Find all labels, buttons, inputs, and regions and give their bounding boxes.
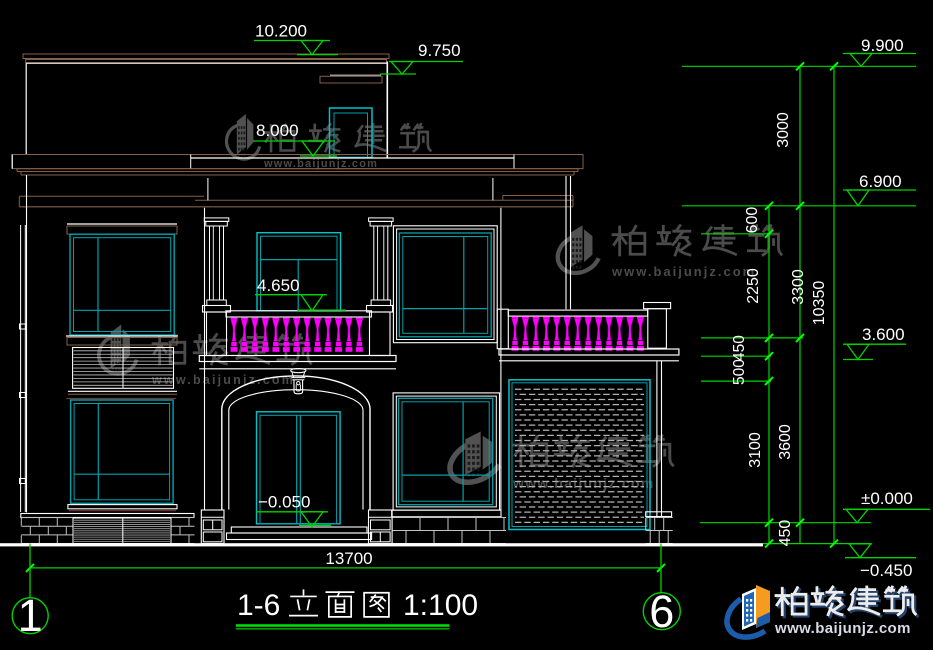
svg-text:2250: 2250: [745, 268, 762, 304]
svg-text:10.200: 10.200: [255, 22, 307, 41]
svg-text:9.900: 9.900: [861, 36, 904, 55]
svg-text:1-6: 1-6: [237, 589, 280, 622]
svg-text:3100: 3100: [747, 432, 764, 468]
svg-text:600: 600: [744, 207, 761, 234]
svg-text:3.600: 3.600: [862, 325, 905, 344]
svg-text:450: 450: [777, 520, 794, 547]
svg-text:9.750: 9.750: [418, 41, 461, 60]
svg-text:500: 500: [731, 359, 748, 385]
svg-text:−0.050: −0.050: [258, 493, 310, 512]
svg-text:3600: 3600: [777, 424, 794, 460]
svg-text:6: 6: [649, 586, 674, 637]
svg-text:10350: 10350: [811, 281, 828, 326]
svg-text:www.baijunjz.com: www.baijunjz.com: [774, 620, 911, 637]
svg-text:3000: 3000: [775, 112, 792, 148]
svg-text:13700: 13700: [325, 549, 372, 568]
svg-text:±0.000: ±0.000: [861, 489, 913, 508]
svg-text:3300: 3300: [790, 269, 807, 305]
svg-text:−0.450: −0.450: [860, 561, 912, 580]
svg-text:www.baijunjz.com: www.baijunjz.com: [611, 264, 756, 279]
svg-text:www.baijunjz.com: www.baijunjz.com: [151, 373, 295, 387]
svg-text:4.650: 4.650: [257, 276, 300, 295]
svg-text:www.baijunjz.com: www.baijunjz.com: [512, 475, 655, 491]
svg-text:1: 1: [18, 590, 43, 641]
svg-text:6.900: 6.900: [859, 172, 902, 191]
svg-text:8.000: 8.000: [256, 121, 299, 140]
svg-text:450: 450: [731, 335, 748, 361]
svg-text:1:100: 1:100: [403, 589, 478, 622]
